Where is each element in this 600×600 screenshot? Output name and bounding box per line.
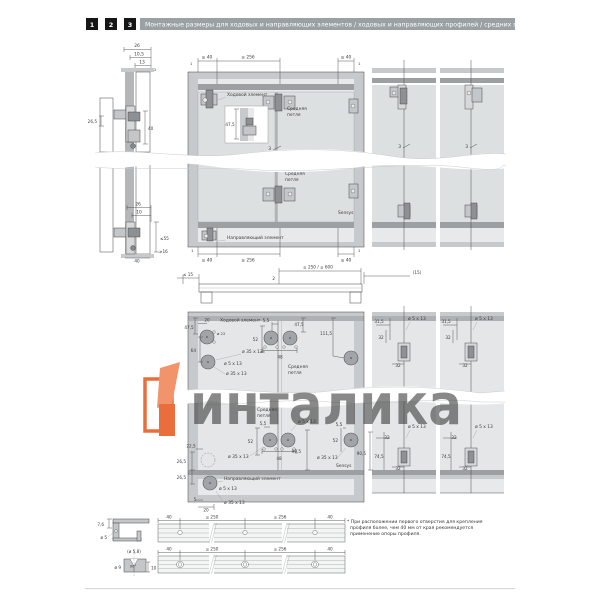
dim-90-5: 90,5 (292, 449, 302, 454)
footnote-line-1: * При расположении первого отверстия для… (347, 519, 483, 525)
dim-47-5-left: 47,5 (184, 325, 194, 330)
countersunk-hole (177, 561, 184, 568)
dim-16: ≥16 (159, 249, 168, 254)
catalog-page: 1 2 3 Монтажные размеры для ходовых и на… (0, 0, 600, 600)
dim-32-b: 32 (395, 363, 401, 368)
dim-31-5: 31,5 (374, 319, 384, 324)
bottom-panel (188, 242, 364, 247)
top-rail (198, 84, 354, 90)
guide-rail-band (188, 470, 364, 475)
dim-90deg: 90° (130, 564, 137, 569)
dim-o5-bottom: ø 5 x 13 (475, 424, 493, 430)
dim-o5-8: (ø 5,8) (127, 549, 141, 554)
bottom-cap (188, 495, 364, 502)
dim-40-r: 40 (327, 515, 333, 520)
dim-15-left: ≤ 15 (183, 272, 194, 277)
dim-o5: ø 5 x 13 (475, 316, 493, 322)
top-panel (188, 72, 364, 79)
dim-40-l: 40 (166, 547, 172, 552)
sensys-label: Sensys (336, 463, 352, 469)
dim-32-b: 32 (462, 363, 468, 368)
dim-32-a: 32 (378, 335, 384, 340)
fixing-hole (313, 530, 317, 534)
dim-48-bottom: 48 (276, 456, 282, 461)
gap-dim-3: 3 (398, 144, 401, 150)
page-title: Монтажные размеры для ходовых и направля… (145, 21, 537, 29)
dim-5: 5 (194, 497, 197, 502)
dim-22-5: 22,5 (186, 444, 196, 449)
running-element-label: Ходовой элемент (220, 317, 261, 324)
dim-74-5: 74,5 (374, 454, 384, 459)
dim-20: 20 (204, 318, 210, 323)
bottom-panel (121, 254, 154, 258)
inset-dim-47-5: 47,5 (225, 122, 235, 127)
dim-top-40l: ≤ 40 (202, 55, 213, 61)
dim-o5-a: ø 5 x 13 (224, 361, 242, 367)
bottom-rail (198, 222, 354, 228)
dim-40-l: 40 (166, 515, 172, 520)
dim-31-5: 31,5 (441, 319, 451, 324)
step-badge-3-label: 3 (128, 21, 133, 29)
dim-o35-a: ø 35 x 13 (242, 349, 263, 355)
dim-top-256: ≤ 256 (241, 55, 255, 61)
dim-90-5: 90,5 (357, 451, 367, 456)
gap-dim-3: 3 (465, 144, 468, 150)
dim-55: ≤55 (160, 236, 169, 241)
dim-32-d: 32 (395, 466, 401, 471)
dim-40: 40 (134, 259, 140, 264)
middle-hinge-hardware (263, 186, 295, 203)
step-badge-1-label: 1 (90, 21, 95, 29)
middle-hinge-label-1a: Средняя (287, 106, 307, 112)
countersunk-hole (242, 561, 249, 568)
dim-26-5: 26,5 (88, 119, 98, 124)
fixing-hole (243, 530, 247, 534)
dim-o35-right: ø 35 x 13 (317, 455, 338, 461)
dim-52-top: 52 (253, 337, 259, 342)
dim-111-5: 111,5 (320, 331, 332, 336)
dim-o5: ø 5 (100, 535, 107, 540)
guide-element-label: Направляющий элемент (227, 234, 284, 241)
watermark: инталика (145, 362, 462, 438)
dim-256: ≤ 256 (274, 547, 287, 552)
dim-256: ≤ 256 (274, 515, 287, 520)
dim-7-6: 7,6 (97, 522, 104, 527)
inset-detail-box: 47,5 (225, 106, 268, 143)
dim-10: 10 (136, 210, 142, 216)
dim-64: 64 (191, 348, 197, 353)
intalika-watermark-text: инталика (190, 373, 462, 438)
dim-250: ≤ 250 (206, 515, 219, 520)
dim-74-5: 74,5 (441, 454, 451, 459)
dim-15-right: (15) (413, 270, 422, 275)
page-header: 1 2 3 Монтажные размеры для ходовых и на… (86, 18, 537, 30)
dim-250: ≤ 250 (206, 547, 219, 552)
dim-o5-c: ø 5 x 13 (219, 486, 237, 492)
middle-hinge-label-1b: петля (287, 113, 301, 118)
dim-40-r: 40 (327, 547, 333, 552)
top-panel (121, 68, 154, 72)
running-element-label: Ходовой элемент (227, 91, 268, 98)
dim-26-5-b: 26,5 (177, 475, 187, 480)
dim-26: 26 (134, 43, 140, 49)
dim-32-a: 32 (445, 335, 451, 340)
top-rail-band (188, 316, 364, 321)
dim-40: 40 (148, 126, 154, 131)
dim-5-5-top: 5,5 (263, 318, 270, 323)
dim-o22: ø 22 (217, 331, 226, 336)
dim-52-right: 52 (333, 438, 339, 443)
dim-10: 10 (151, 566, 157, 571)
footnote-line-2: профиля более, чем 40 мм от края рекомен… (350, 525, 473, 531)
dim-bot-40l: ≤ 40 (202, 258, 213, 264)
dim-32-d: 32 (462, 466, 468, 471)
dim-26: 26 (135, 202, 141, 208)
dim-o35-c: ø 35 x 13 (228, 454, 249, 460)
dim-bot-40r: ≤ 40 (341, 258, 352, 264)
footnote-line-3: применение опоры профиля. (350, 531, 421, 537)
step-badge-2-label: 2 (109, 21, 114, 29)
dim-52-bottom: 52 (248, 439, 254, 444)
dim-26-5-a: 26,5 (177, 459, 187, 464)
dim-47-5-right: 47,5 (294, 322, 304, 327)
dim-13: 13 (139, 60, 145, 66)
dim-top-40r: ≤ 40 (341, 55, 352, 61)
fixing-hole (178, 530, 182, 534)
dim-10-5: 10,5 (134, 52, 144, 58)
top-cap (188, 312, 364, 316)
dim-20-bottom: 20 (203, 508, 209, 513)
middle-hinge-label-1a: Средняя (288, 364, 308, 370)
guide-element-label: Направляющий элемент (224, 475, 281, 482)
dim-o35-d: ø 35 x 13 (224, 500, 245, 506)
dim-o5: ø 5 x 13 (408, 316, 426, 322)
dim-span: ≥ 250 / ≤ 600 (303, 265, 333, 270)
dim-48-top: 48 (277, 355, 283, 360)
sensys-label: Sensys (338, 210, 354, 216)
dim-2: 2 (272, 276, 275, 281)
middle-hinge-label-2b: петля (285, 178, 299, 183)
dim-o9: ø 9 (114, 565, 121, 570)
dim-bot-256: ≤ 256 (241, 258, 255, 264)
countersunk-hole (312, 561, 319, 568)
bottom-rule (85, 588, 515, 589)
